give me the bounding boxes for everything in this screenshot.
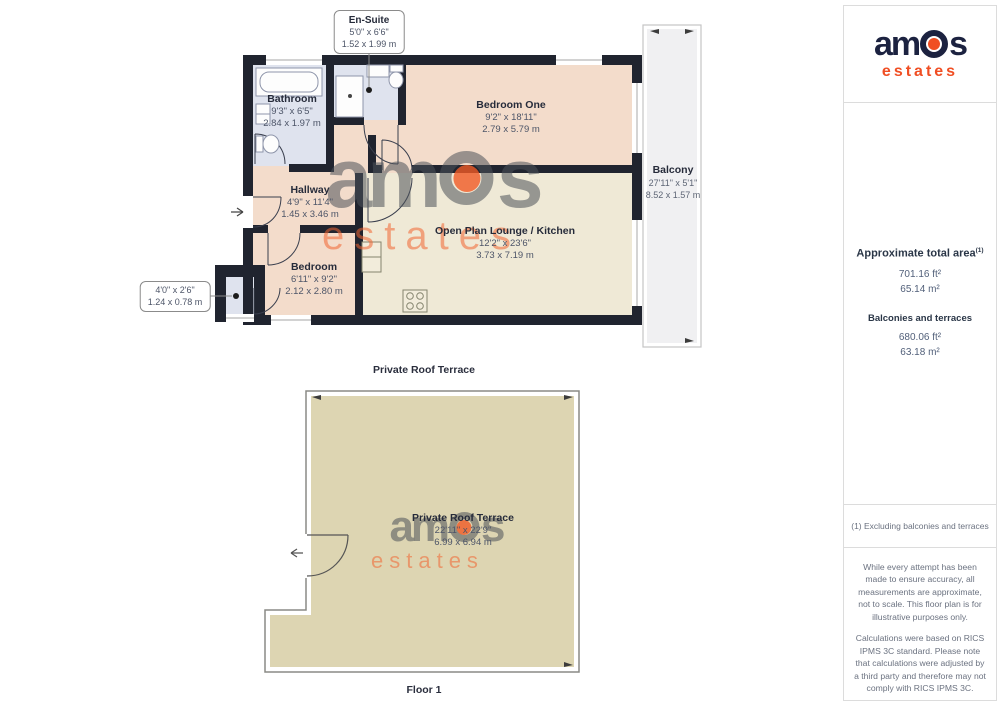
terrace-structure <box>265 391 579 672</box>
balconies-area-ft: 680.06 ft² <box>899 330 941 345</box>
logo-wordmark: am s <box>874 27 966 61</box>
agency-logo: am s estates <box>844 6 996 103</box>
logo-text: am <box>874 27 919 61</box>
floor-caption: Floor 1 <box>406 684 441 696</box>
entry-arrow-icon <box>231 208 243 216</box>
disclaimer: While every attempt has been made to ens… <box>844 548 996 700</box>
total-area-title: Approximate total area(1) <box>856 247 983 260</box>
hob <box>403 290 427 312</box>
ensuite-callout: En-Suite 5'0" x 6'6" 1.52 x 1.99 m <box>334 10 405 54</box>
terrace-caption: Private Roof Terrace <box>373 364 475 376</box>
toilet <box>256 136 263 152</box>
balcony-structure <box>643 25 701 347</box>
balconies-title: Balconies and terraces <box>868 313 972 324</box>
disclaimer-paragraph: Calculations were based on RICS IPMS 3C … <box>854 632 986 694</box>
logo-text: s <box>949 27 966 61</box>
toilet-bowl <box>389 72 403 88</box>
floorplan-page: am s estates am s estates Bathroom 9'3" … <box>0 0 1000 707</box>
area-summary: Approximate total area(1) 701.16 ft² 65.… <box>844 103 996 505</box>
total-area-m: 65.14 m² <box>900 282 939 297</box>
balconies-area-m: 63.18 m² <box>900 345 939 360</box>
toilet-tank <box>390 65 403 72</box>
footnote-marker: (1) <box>976 247 984 254</box>
info-sidebar: am s estates Approximate total area(1) 7… <box>843 5 997 701</box>
entry-door-gap <box>243 196 253 228</box>
logo-o-icon <box>920 30 948 58</box>
disclaimer-paragraph: While every attempt has been made to ens… <box>854 561 986 623</box>
area-footnote: (1) Excluding balconies and terraces <box>844 505 996 548</box>
basin <box>367 65 389 77</box>
total-area-ft: 701.16 ft² <box>899 267 941 282</box>
terrace-door-gap <box>301 534 311 578</box>
logo-subtitle: estates <box>882 63 958 81</box>
store-callout: 4'0" x 2'6" 1.24 x 0.78 m <box>140 281 211 312</box>
